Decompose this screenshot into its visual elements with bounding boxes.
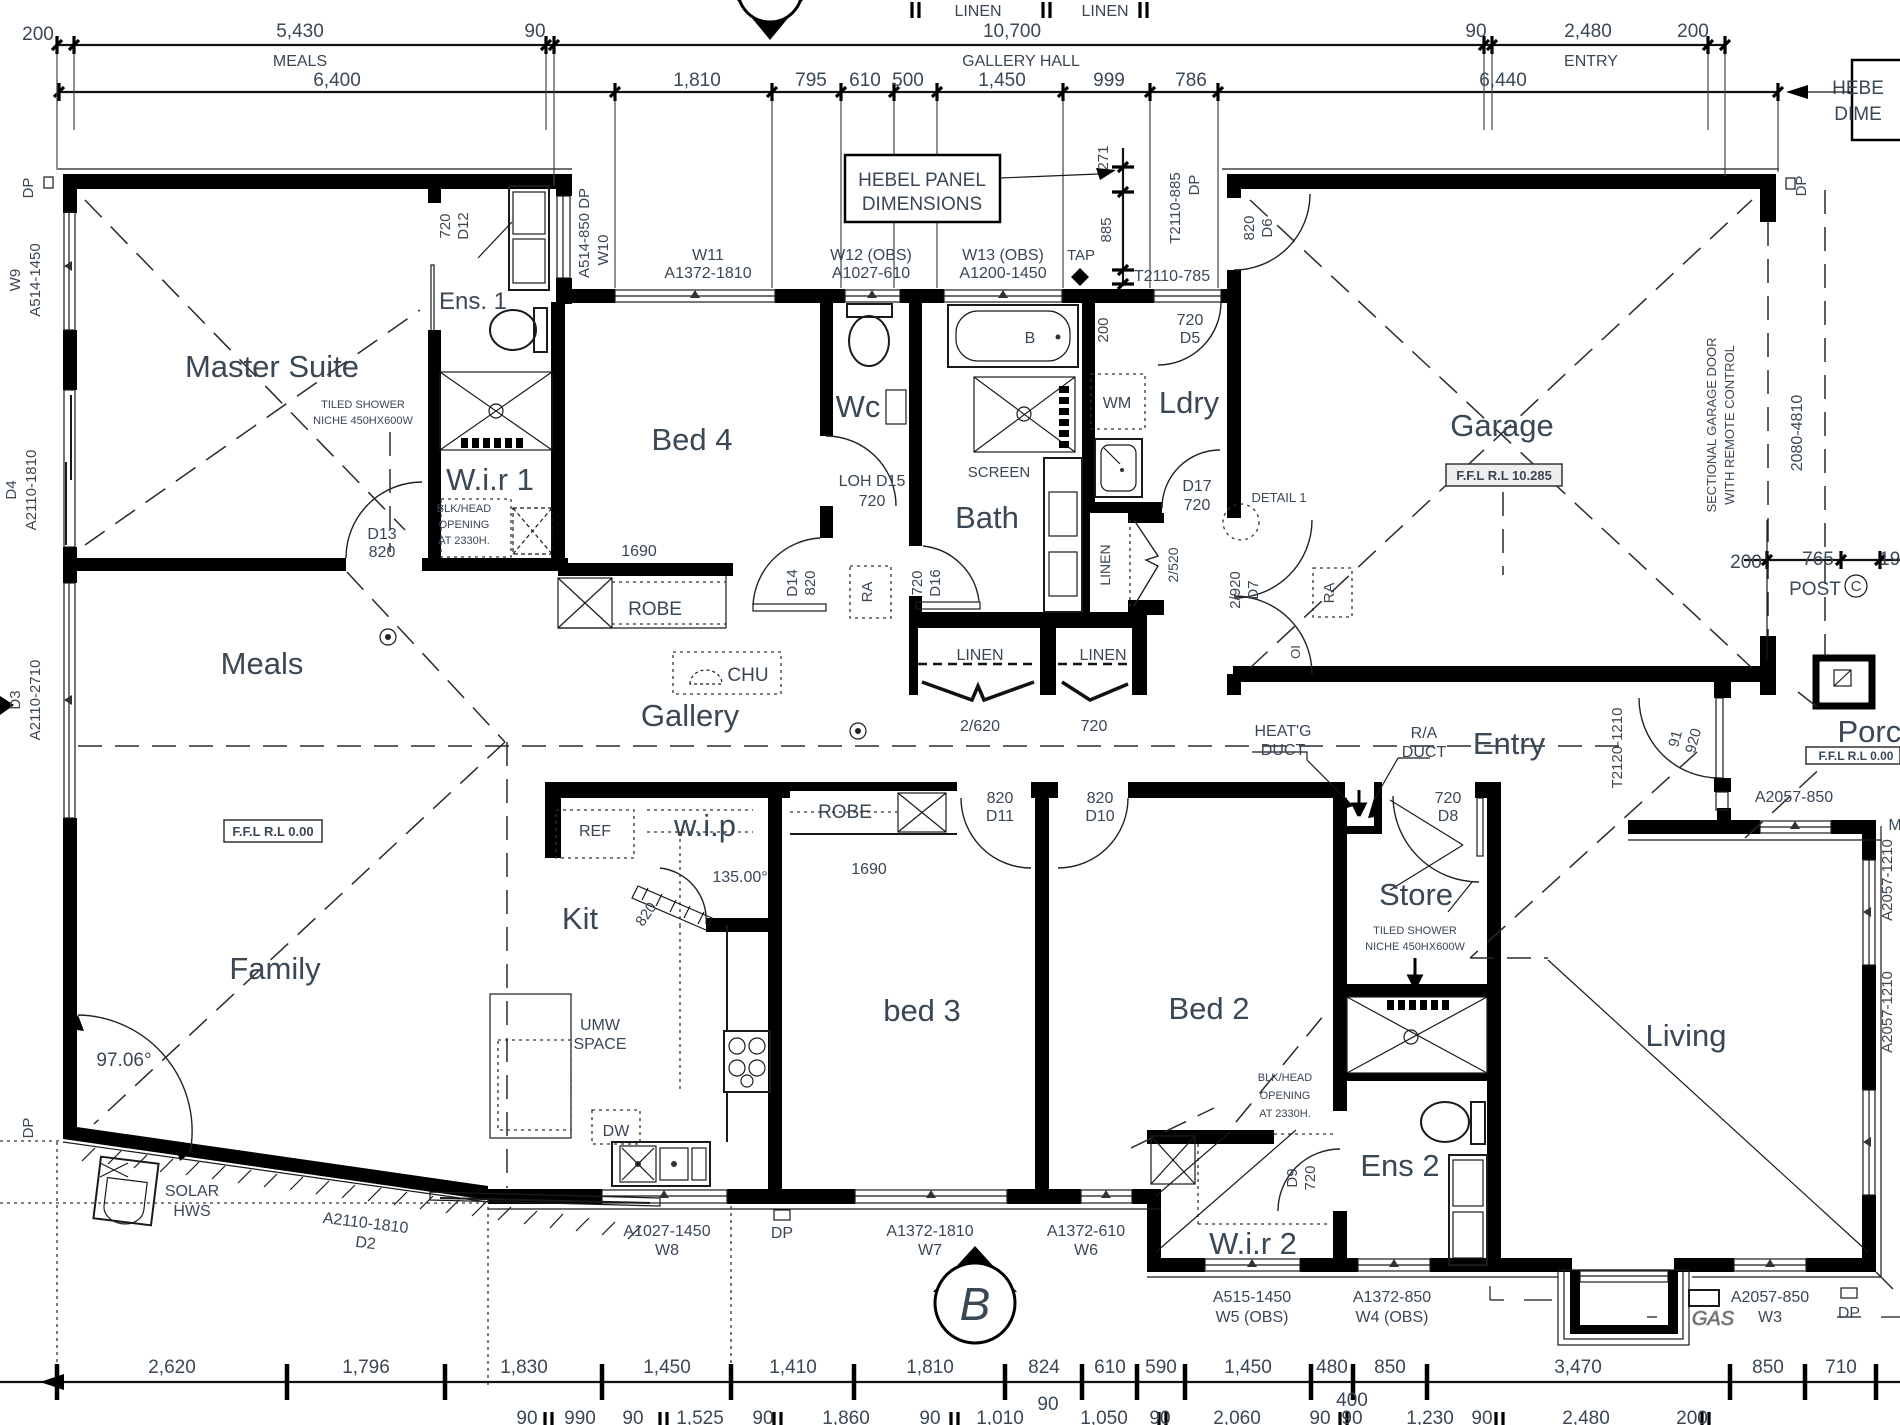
- svg-text:DIMENSIONS: DIMENSIONS: [862, 194, 982, 215]
- svg-text:720: 720: [859, 493, 886, 510]
- svg-text:TILED SHOWER: TILED SHOWER: [1373, 925, 1457, 937]
- svg-text:BLK/HEAD: BLK/HEAD: [1258, 1072, 1312, 1084]
- svg-text:SCREEN: SCREEN: [968, 464, 1031, 481]
- svg-text:1,410: 1,410: [769, 1357, 817, 1378]
- svg-text:2/920: 2/920: [1227, 571, 1244, 609]
- svg-text:W8: W8: [655, 1242, 679, 1259]
- svg-text:T2110-885: T2110-885: [1167, 172, 1184, 243]
- svg-text:AT 2330H.: AT 2330H.: [1259, 1108, 1311, 1120]
- svg-text:90: 90: [1309, 1408, 1330, 1425]
- svg-text:A2110-1810: A2110-1810: [23, 450, 40, 531]
- svg-text:885: 885: [1098, 217, 1115, 242]
- svg-text:90: 90: [1341, 1408, 1362, 1425]
- svg-text:bed 3: bed 3: [883, 993, 961, 1028]
- svg-text:D9: D9: [1284, 1168, 1301, 1187]
- svg-text:820: 820: [1087, 790, 1114, 807]
- svg-text:6,400: 6,400: [313, 70, 361, 91]
- svg-text:OPENING: OPENING: [1260, 1090, 1311, 1102]
- svg-text:W12 (OBS): W12 (OBS): [830, 247, 912, 264]
- svg-text:2,620: 2,620: [148, 1357, 196, 1378]
- svg-text:DP: DP: [20, 178, 37, 199]
- svg-text:HWS: HWS: [173, 1203, 210, 1220]
- svg-text:200: 200: [22, 24, 54, 45]
- svg-text:Garage: Garage: [1450, 408, 1553, 443]
- svg-text:1,010: 1,010: [976, 1408, 1024, 1425]
- svg-text:W4 (OBS): W4 (OBS): [1356, 1309, 1429, 1326]
- svg-text:Ens 2: Ens 2: [1360, 1148, 1439, 1183]
- svg-text:765: 765: [1802, 549, 1834, 570]
- svg-text:Ens. 1: Ens. 1: [439, 288, 507, 315]
- svg-text:Porch: Porch: [1838, 714, 1900, 749]
- svg-text:2080-4810: 2080-4810: [1789, 395, 1806, 472]
- svg-text:200: 200: [1676, 1408, 1708, 1425]
- svg-text:1,810: 1,810: [906, 1357, 954, 1378]
- svg-text:F.F.L R.L 0.00: F.F.L R.L 0.00: [232, 824, 313, 839]
- svg-text:W.i.r 1: W.i.r 1: [446, 462, 534, 497]
- svg-text:POST: POST: [1789, 579, 1841, 600]
- svg-text:DP: DP: [1793, 176, 1810, 197]
- svg-text:DUCT: DUCT: [1402, 744, 1447, 761]
- svg-text:720: 720: [1302, 1165, 1319, 1190]
- svg-text:1,230: 1,230: [1406, 1408, 1454, 1425]
- svg-text:850: 850: [1752, 1357, 1784, 1378]
- svg-text:1,860: 1,860: [822, 1408, 870, 1425]
- svg-text:F.F.L R.L 0.00: F.F.L R.L 0.00: [1819, 749, 1894, 763]
- svg-text:610: 610: [849, 70, 881, 91]
- svg-text:W3: W3: [1758, 1309, 1782, 1326]
- svg-text:824: 824: [1028, 1357, 1060, 1378]
- svg-text:720: 720: [437, 213, 454, 238]
- svg-text:DP: DP: [1186, 175, 1203, 196]
- svg-text:200: 200: [1730, 552, 1762, 573]
- svg-text:DIME: DIME: [1834, 104, 1882, 125]
- svg-text:D14: D14: [784, 569, 801, 597]
- svg-text:NICHE 450HX600W: NICHE 450HX600W: [313, 415, 413, 427]
- svg-text:1,830: 1,830: [500, 1357, 548, 1378]
- svg-text:M: M: [1888, 817, 1900, 834]
- svg-text:1690: 1690: [621, 543, 657, 560]
- svg-text:OI: OI: [1288, 645, 1303, 659]
- svg-text:90: 90: [622, 1408, 643, 1425]
- svg-text:720: 720: [1081, 718, 1108, 735]
- svg-text:820: 820: [1241, 215, 1258, 240]
- svg-text:OPENING: OPENING: [439, 519, 490, 531]
- svg-text:R/A: R/A: [1411, 725, 1438, 742]
- svg-text:A1372-610: A1372-610: [1047, 1223, 1125, 1240]
- svg-text:AT 2330H.: AT 2330H.: [438, 535, 490, 547]
- svg-text:720: 720: [1435, 790, 1462, 807]
- svg-text:T2120-1210: T2120-1210: [1609, 708, 1626, 789]
- svg-text:1,450: 1,450: [978, 70, 1026, 91]
- svg-text:1,450: 1,450: [643, 1357, 691, 1378]
- svg-text:A2057-1210: A2057-1210: [1879, 971, 1896, 1053]
- svg-text:Family: Family: [229, 951, 321, 986]
- svg-text:T2110-785: T2110-785: [1134, 268, 1210, 285]
- svg-text:90: 90: [516, 1408, 537, 1425]
- svg-text:WITH REMOTE CONTROL: WITH REMOTE CONTROL: [1722, 345, 1737, 505]
- svg-text:D11: D11: [986, 808, 1014, 825]
- svg-text:97.06°: 97.06°: [96, 1050, 151, 1071]
- svg-text:SOLAR: SOLAR: [165, 1183, 219, 1200]
- svg-text:820: 820: [369, 544, 396, 561]
- svg-text:GALLERY HALL: GALLERY HALL: [962, 53, 1080, 70]
- svg-text:A514-1450: A514-1450: [27, 243, 44, 316]
- svg-text:480: 480: [1316, 1357, 1348, 1378]
- svg-text:D10: D10: [1085, 808, 1114, 825]
- svg-text:990: 990: [564, 1408, 596, 1425]
- svg-text:90: 90: [524, 21, 545, 42]
- svg-text:10,700: 10,700: [983, 21, 1041, 42]
- svg-text:ENTRY: ENTRY: [1564, 53, 1618, 70]
- svg-text:W6: W6: [1074, 1242, 1098, 1259]
- svg-text:1,810: 1,810: [673, 70, 721, 91]
- svg-text:DW: DW: [603, 1123, 631, 1140]
- svg-text:A515-1450: A515-1450: [1213, 1289, 1291, 1306]
- svg-text:Master Suite: Master Suite: [185, 349, 359, 384]
- svg-text:135.00°: 135.00°: [712, 869, 767, 886]
- svg-text:A1027-1450: A1027-1450: [623, 1223, 710, 1240]
- svg-text:Gallery: Gallery: [641, 698, 740, 733]
- svg-text:HEAT'G: HEAT'G: [1255, 723, 1312, 740]
- svg-text:D17: D17: [1182, 478, 1211, 495]
- svg-text:W9: W9: [7, 269, 24, 292]
- svg-text:Living: Living: [1646, 1018, 1727, 1053]
- svg-text:90: 90: [1465, 21, 1486, 42]
- svg-text:LINEN: LINEN: [1081, 3, 1128, 20]
- svg-text:CHU: CHU: [727, 665, 768, 686]
- svg-text:Wc: Wc: [836, 389, 881, 424]
- svg-text:HEBE: HEBE: [1832, 78, 1884, 99]
- svg-text:A1372-1810: A1372-1810: [664, 265, 751, 282]
- svg-text:720: 720: [1184, 497, 1211, 514]
- svg-text:LINEN: LINEN: [954, 3, 1001, 20]
- svg-text:720: 720: [1177, 312, 1204, 329]
- svg-text:WM: WM: [1103, 395, 1131, 412]
- svg-text:Kit: Kit: [562, 901, 599, 936]
- svg-text:2,480: 2,480: [1562, 1408, 1610, 1425]
- svg-text:W5 (OBS): W5 (OBS): [1216, 1309, 1289, 1326]
- svg-text:1,050: 1,050: [1080, 1408, 1128, 1425]
- svg-text:271: 271: [1095, 145, 1112, 170]
- svg-text:D3: D3: [7, 690, 24, 709]
- svg-text:W11: W11: [692, 247, 724, 264]
- svg-text:710: 710: [1825, 1357, 1857, 1378]
- svg-text:RA: RA: [1321, 583, 1338, 604]
- svg-text:A2110-2710: A2110-2710: [27, 660, 44, 741]
- svg-text:W.i.r 2: W.i.r 2: [1209, 1226, 1297, 1261]
- svg-text:6,440: 6,440: [1479, 70, 1527, 91]
- svg-text:999: 999: [1093, 70, 1125, 91]
- svg-text:W13 (OBS): W13 (OBS): [962, 247, 1044, 264]
- svg-text:Bed 4: Bed 4: [651, 422, 732, 457]
- svg-text:195: 195: [1879, 549, 1900, 570]
- svg-text:2/520: 2/520: [1165, 547, 1181, 582]
- svg-text:610: 610: [1094, 1357, 1126, 1378]
- svg-text:D7: D7: [1245, 580, 1262, 599]
- svg-text:Store: Store: [1379, 877, 1453, 912]
- svg-text:REF: REF: [579, 823, 611, 840]
- svg-text:D2: D2: [354, 1234, 376, 1253]
- svg-text:LINEN: LINEN: [1079, 647, 1126, 664]
- svg-text:1,450: 1,450: [1224, 1357, 1272, 1378]
- svg-text:B: B: [960, 1278, 991, 1330]
- svg-text:TAP: TAP: [1067, 247, 1095, 264]
- svg-text:200: 200: [1095, 317, 1112, 342]
- svg-text:820: 820: [987, 790, 1014, 807]
- svg-text:3,470: 3,470: [1554, 1357, 1602, 1378]
- svg-text:GAS: GAS: [1692, 1308, 1735, 1330]
- svg-text:SPACE: SPACE: [573, 1036, 626, 1053]
- svg-text:D8: D8: [1438, 808, 1459, 825]
- svg-text:SECTIONAL GARAGE DOOR: SECTIONAL GARAGE DOOR: [1704, 337, 1719, 512]
- svg-text:A2057-850: A2057-850: [1731, 1289, 1809, 1306]
- svg-text:DP: DP: [1838, 1305, 1860, 1322]
- svg-text:TILED SHOWER: TILED SHOWER: [321, 399, 405, 411]
- svg-text:ROBE: ROBE: [628, 599, 682, 620]
- svg-text:590: 590: [1145, 1357, 1177, 1378]
- svg-text:LINEN: LINEN: [1097, 544, 1113, 585]
- svg-text:LOH D15: LOH D15: [839, 473, 906, 490]
- svg-text:786: 786: [1175, 70, 1207, 91]
- svg-text:A1372-850: A1372-850: [1353, 1289, 1431, 1306]
- svg-text:DP: DP: [771, 1225, 793, 1242]
- svg-text:DETAIL 1: DETAIL 1: [1252, 490, 1307, 505]
- svg-text:90: 90: [1471, 1408, 1492, 1425]
- svg-text:A2057-850: A2057-850: [1755, 789, 1833, 806]
- svg-text:W10: W10: [595, 235, 612, 266]
- svg-text:90: 90: [1037, 1394, 1058, 1415]
- svg-text:HEBEL PANEL: HEBEL PANEL: [858, 170, 986, 191]
- svg-text:Entry: Entry: [1473, 726, 1546, 761]
- svg-text:Meals: Meals: [221, 646, 304, 681]
- svg-text:F.F.L R.L 10.285: F.F.L R.L 10.285: [1456, 468, 1552, 483]
- svg-text:2,060: 2,060: [1213, 1408, 1261, 1425]
- svg-text:795: 795: [795, 70, 827, 91]
- svg-text:A1200-1450: A1200-1450: [959, 265, 1046, 282]
- svg-text:Ldry: Ldry: [1159, 385, 1220, 420]
- svg-text:NICHE 450HX600W: NICHE 450HX600W: [1365, 941, 1465, 953]
- svg-text:D16: D16: [927, 569, 944, 597]
- svg-text:500: 500: [892, 70, 924, 91]
- svg-text:D6: D6: [1259, 218, 1276, 237]
- svg-text:2/620: 2/620: [960, 718, 1000, 735]
- svg-text:C: C: [1851, 578, 1862, 595]
- svg-text:UMW: UMW: [580, 1017, 621, 1034]
- svg-text:D5: D5: [1180, 330, 1201, 347]
- svg-text:90: 90: [1149, 1408, 1170, 1425]
- svg-text:820: 820: [802, 570, 819, 595]
- svg-text:1,796: 1,796: [342, 1357, 390, 1378]
- svg-text:1,525: 1,525: [676, 1408, 724, 1425]
- svg-text:Bath: Bath: [955, 500, 1019, 535]
- svg-text:BLK/HEAD: BLK/HEAD: [437, 503, 491, 515]
- svg-text:200: 200: [1677, 21, 1709, 42]
- svg-text:720: 720: [909, 570, 926, 595]
- svg-text:LINEN: LINEN: [956, 647, 1003, 664]
- svg-text:A1372-1810: A1372-1810: [886, 1223, 973, 1240]
- svg-text:w.i.p: w.i.p: [673, 808, 736, 843]
- svg-text:1690: 1690: [851, 861, 887, 878]
- svg-text:Bed 2: Bed 2: [1168, 991, 1249, 1026]
- svg-text:90: 90: [919, 1408, 940, 1425]
- svg-text:MEALS: MEALS: [273, 53, 327, 70]
- svg-text:DUCT: DUCT: [1261, 742, 1306, 759]
- svg-text:W7: W7: [918, 1242, 942, 1259]
- svg-text:90: 90: [752, 1408, 773, 1425]
- svg-text:2,480: 2,480: [1564, 21, 1612, 42]
- svg-text:5,430: 5,430: [276, 21, 324, 42]
- svg-text:D4: D4: [3, 480, 20, 499]
- svg-text:850: 850: [1374, 1357, 1406, 1378]
- svg-text:RA: RA: [859, 582, 876, 603]
- svg-text:A514-850 DP: A514-850 DP: [576, 188, 593, 278]
- svg-text:A1027-610: A1027-610: [832, 265, 910, 282]
- svg-text:B: B: [1025, 330, 1036, 347]
- svg-text:A2057-1210: A2057-1210: [1879, 839, 1896, 921]
- svg-text:DP: DP: [20, 1118, 37, 1139]
- svg-text:D13: D13: [367, 526, 396, 543]
- svg-text:D12: D12: [455, 212, 472, 240]
